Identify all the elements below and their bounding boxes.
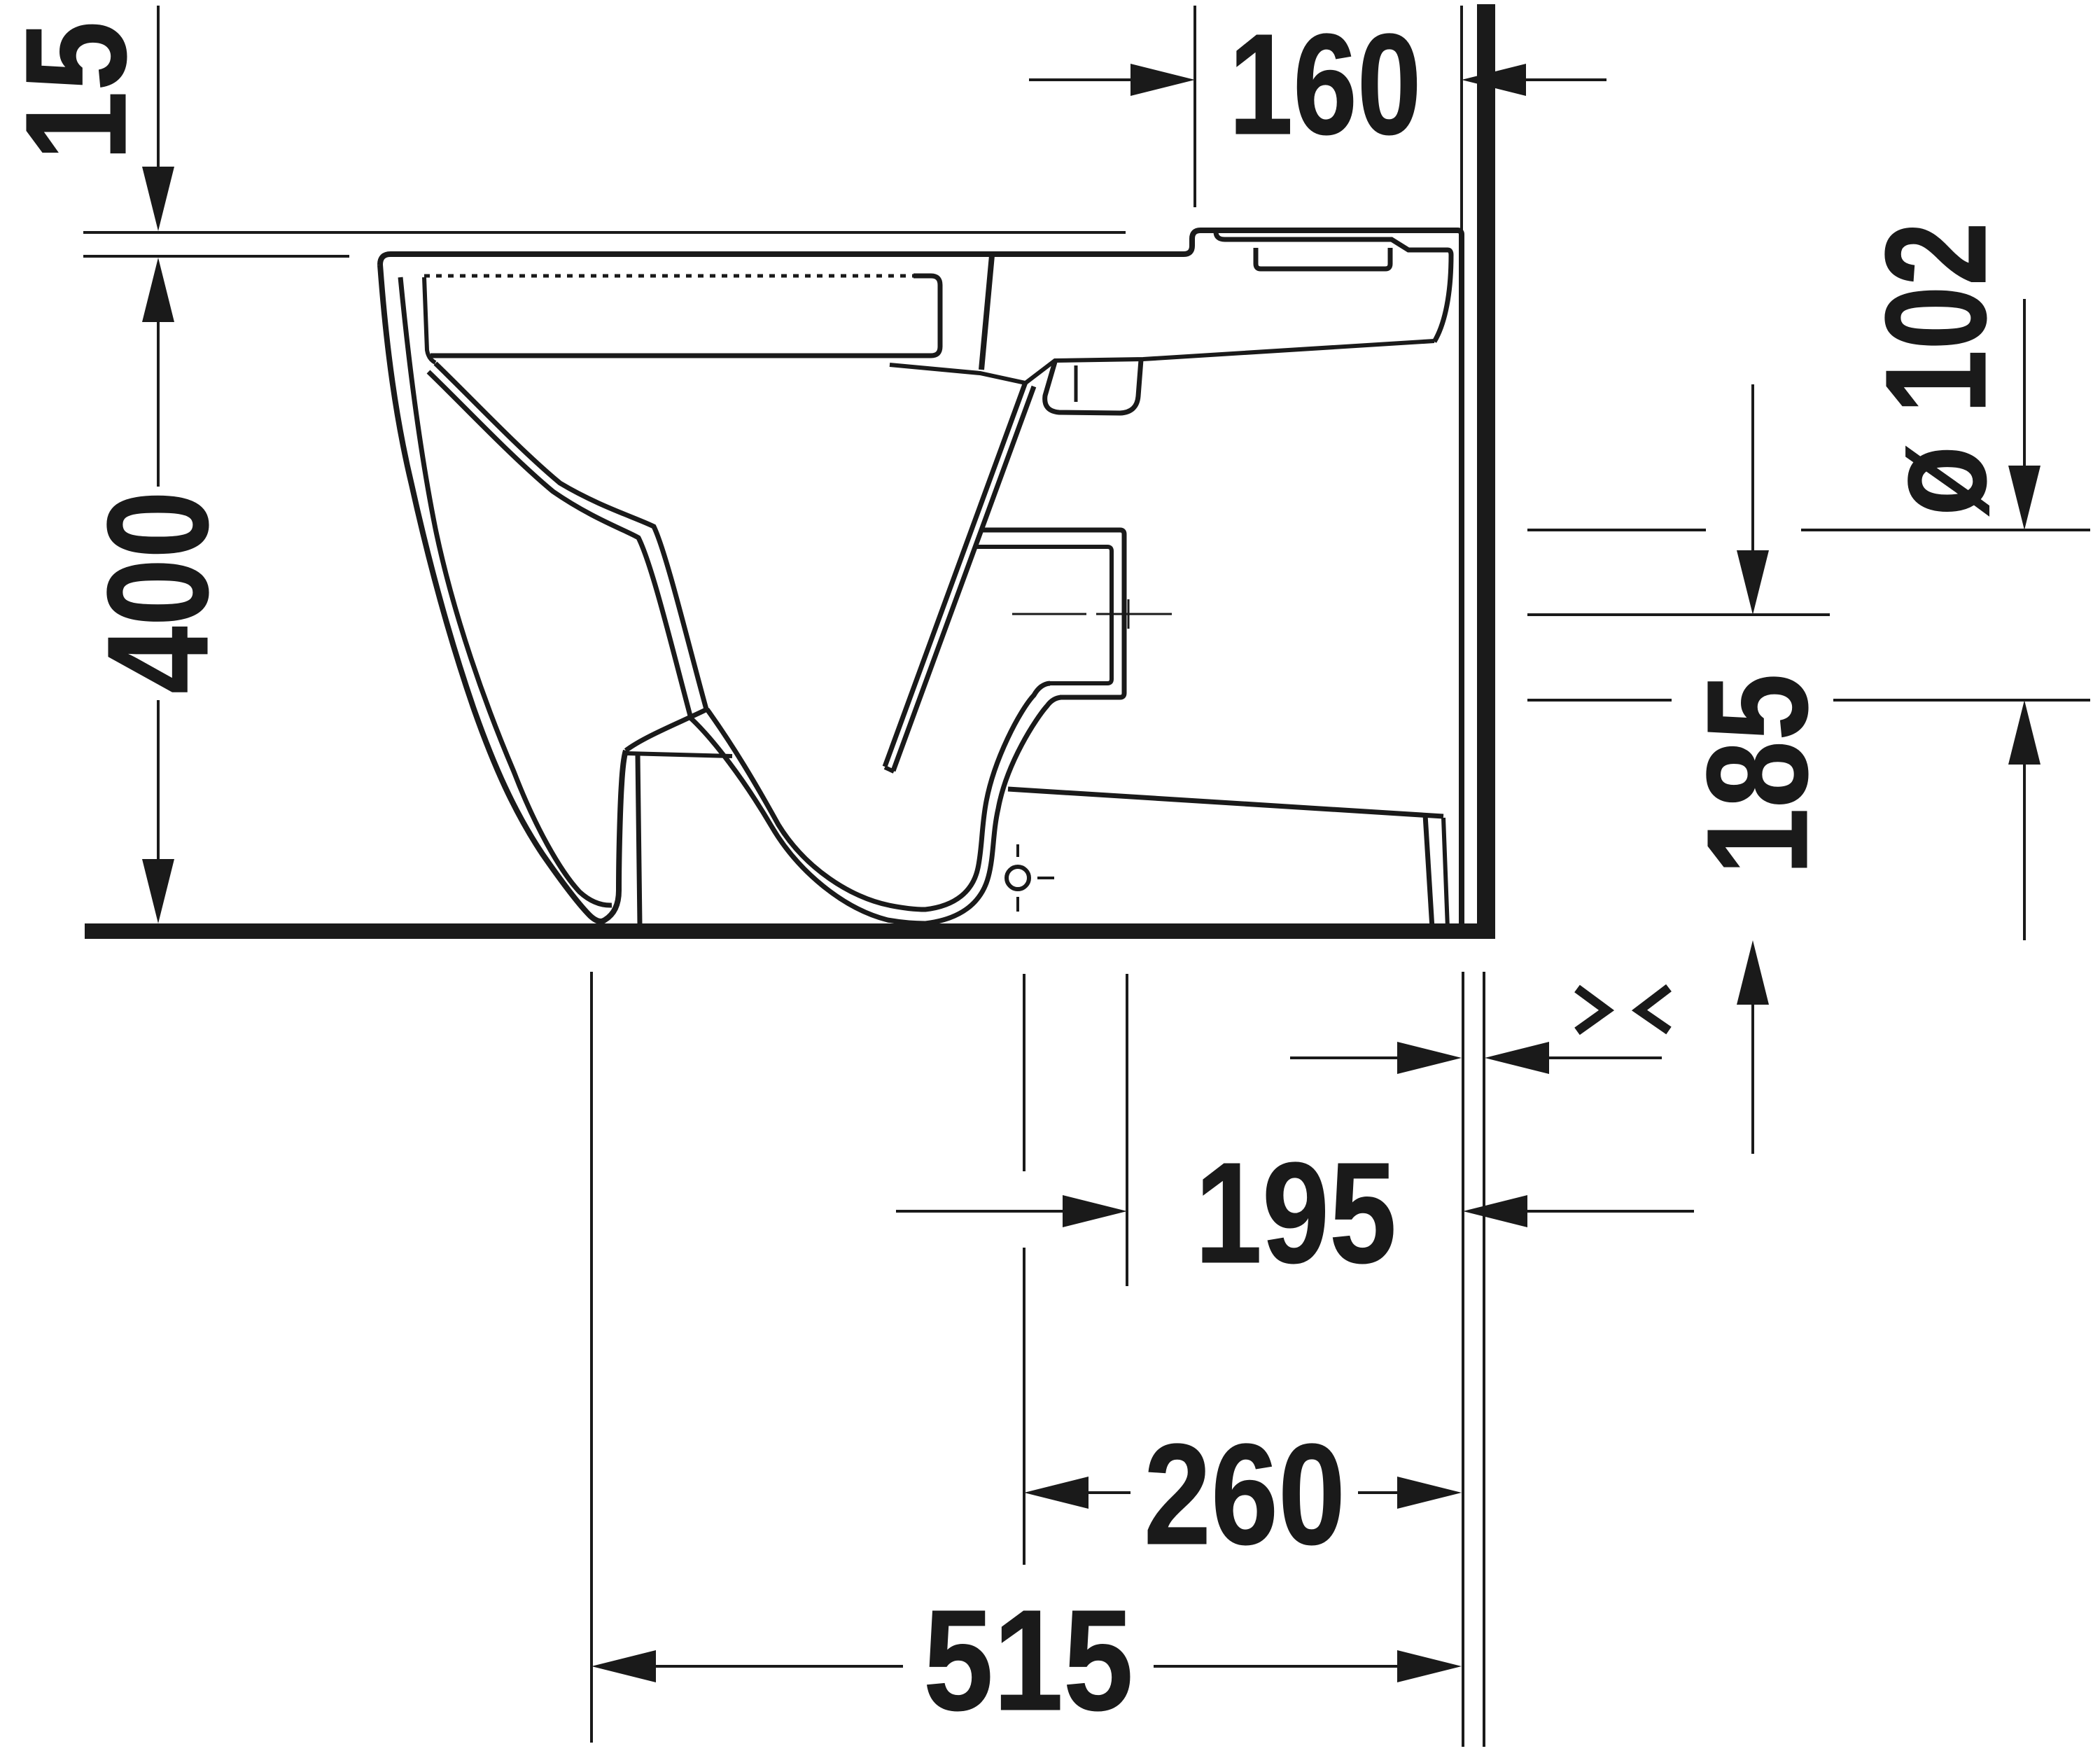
svg-text:515: 515 [923, 1580, 1133, 1740]
svg-text:260: 260 [1144, 1414, 1345, 1575]
svg-text:15: 15 [0, 21, 156, 161]
svg-text:ø 102: ø 102 [1856, 222, 2016, 516]
svg-text:400: 400 [78, 491, 238, 694]
svg-text:160: 160 [1229, 4, 1422, 165]
svg-text:185: 185 [1677, 674, 1837, 875]
svg-text:195: 195 [1195, 1133, 1396, 1293]
